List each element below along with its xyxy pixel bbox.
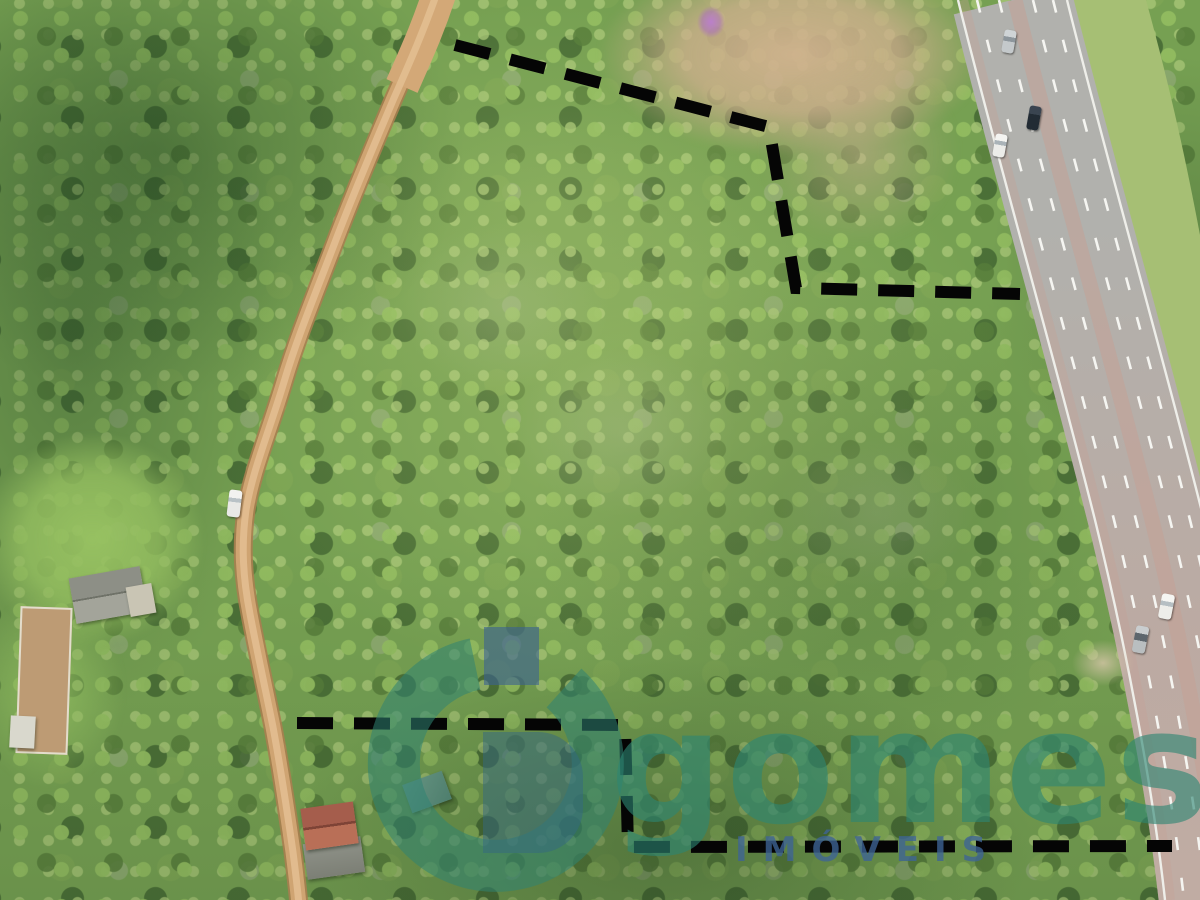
logo-blue-square <box>484 627 539 685</box>
logo-inner-shape <box>483 732 583 853</box>
watermark-subtitle-text: IMÓVEIS <box>735 833 1001 867</box>
aerial-photo: gomes IMÓVEIS <box>0 0 1200 900</box>
watermark-brand-text: gomes <box>610 689 1200 847</box>
